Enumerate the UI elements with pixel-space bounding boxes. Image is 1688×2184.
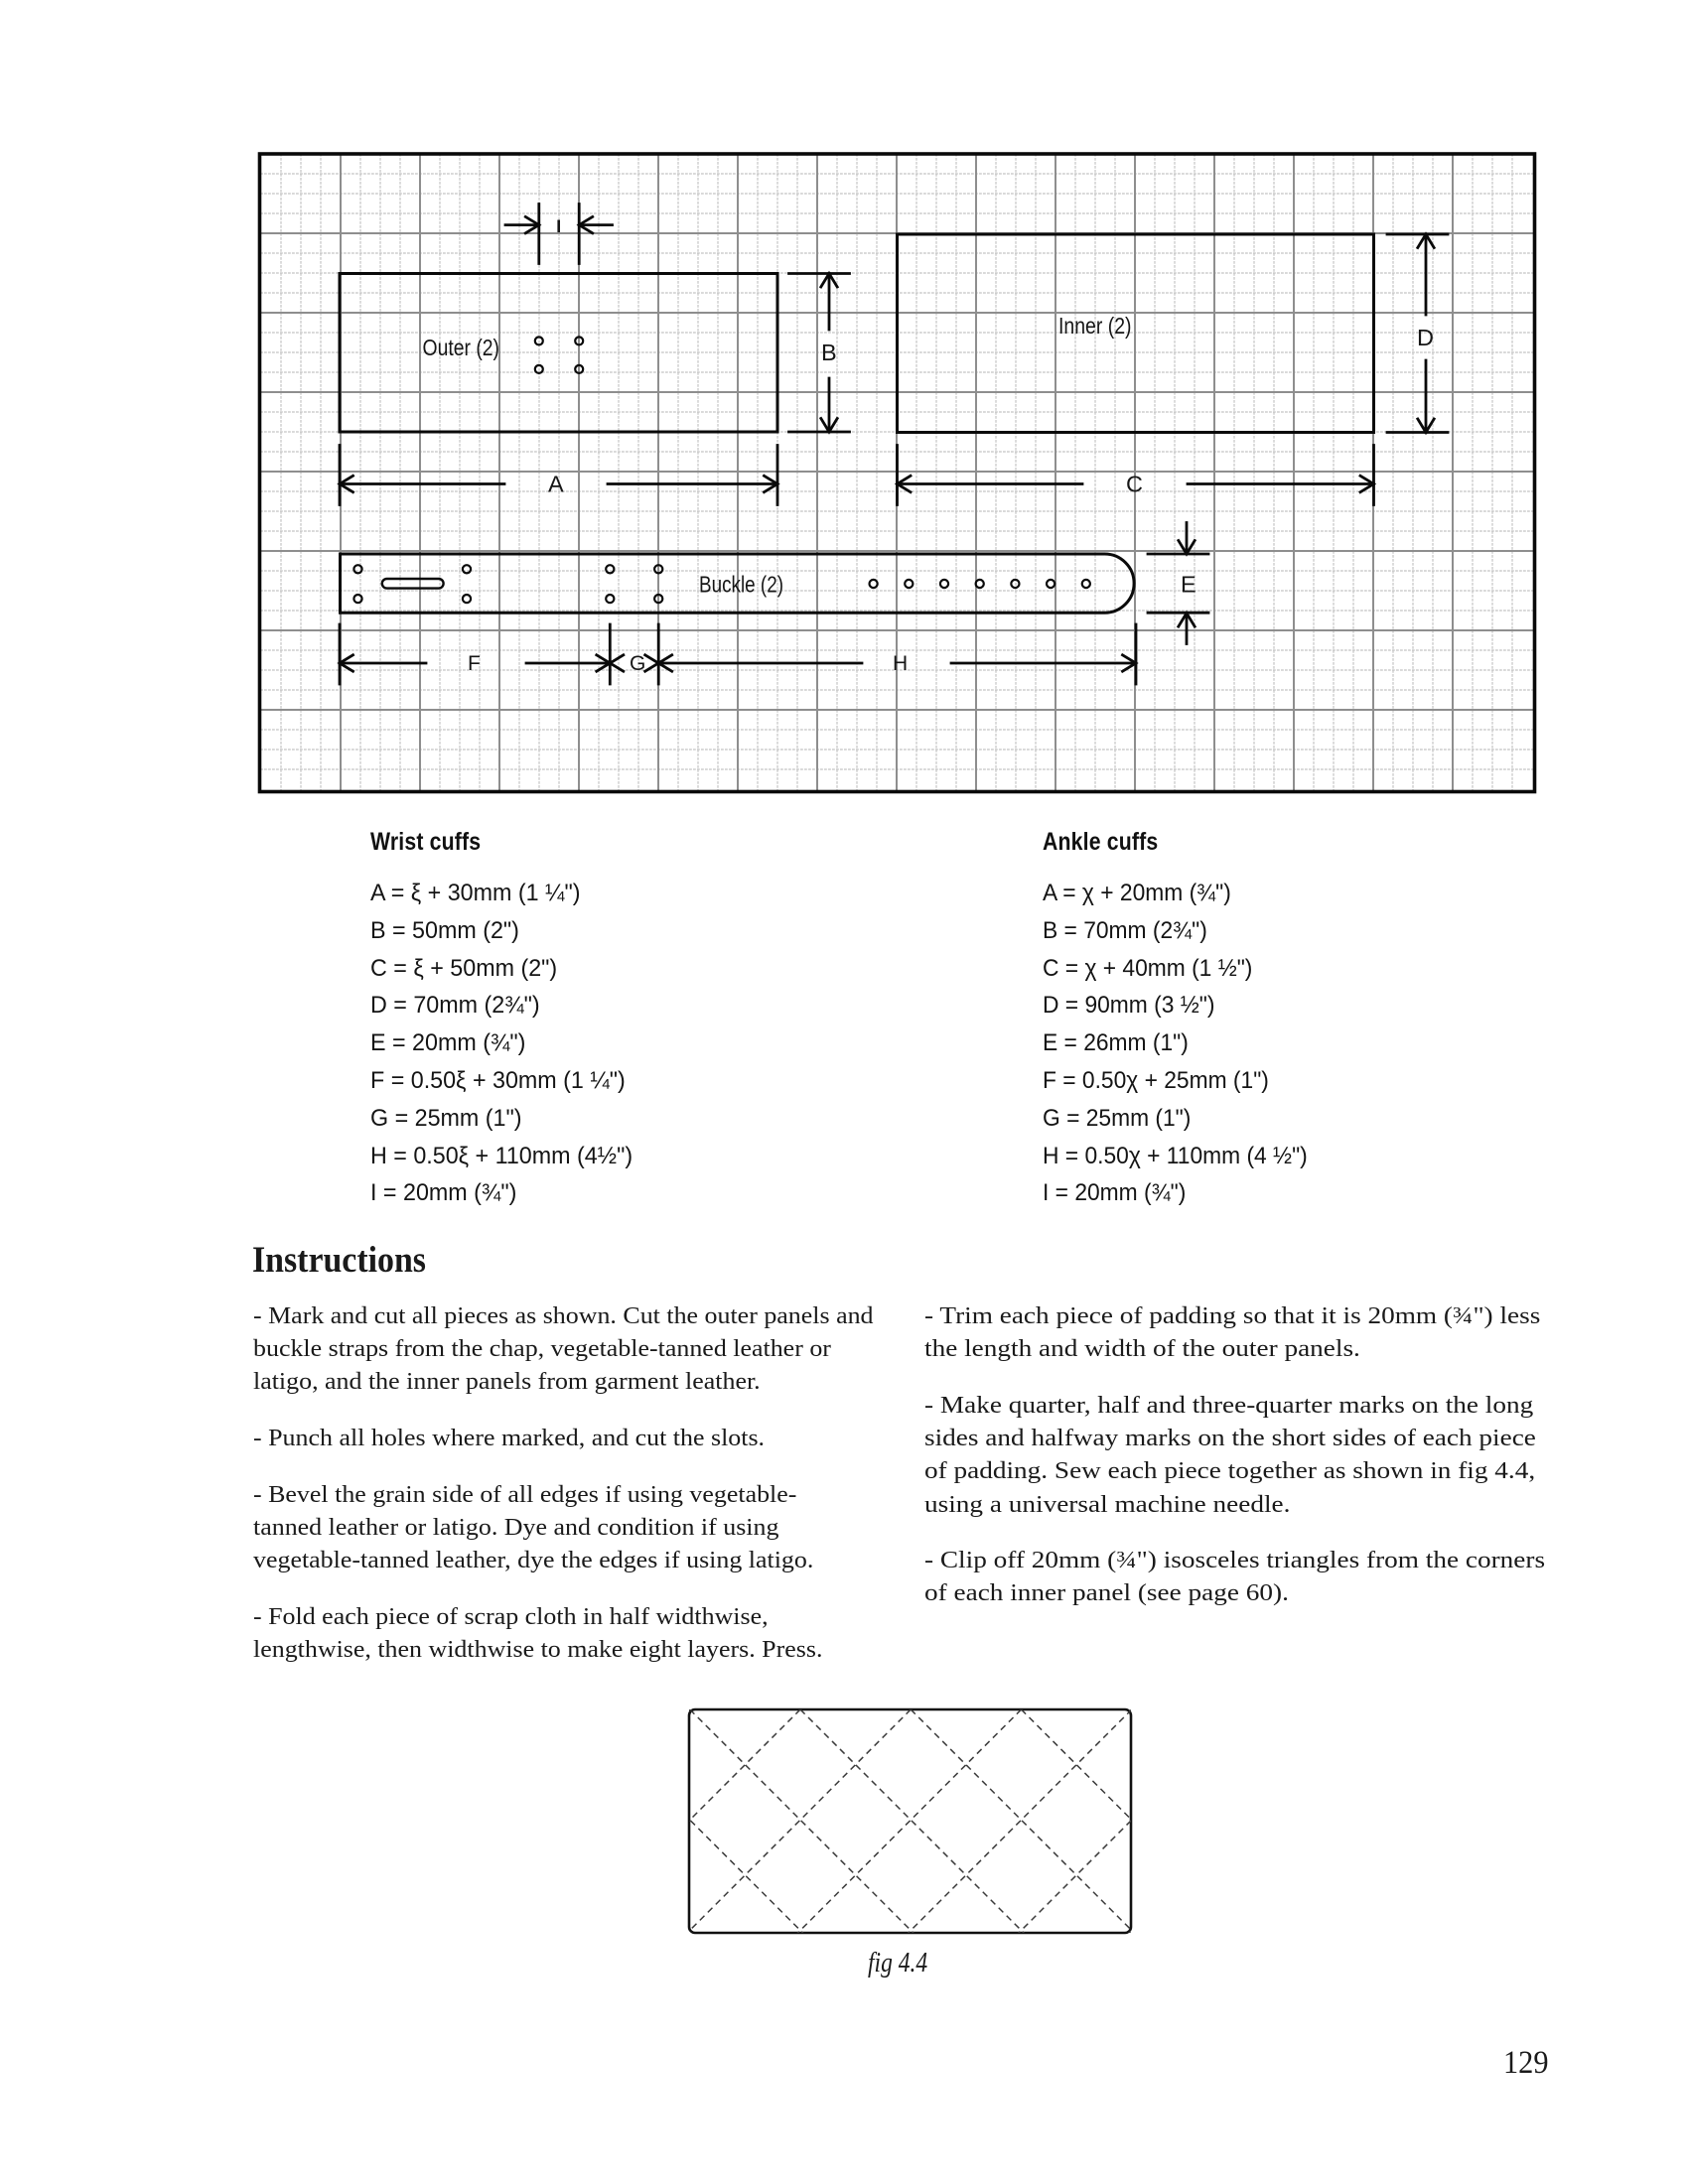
svg-text:A: A	[548, 472, 564, 497]
svg-text:F: F	[468, 652, 481, 675]
svg-text:H: H	[893, 652, 908, 675]
svg-text:B: B	[821, 340, 837, 365]
svg-text:E: E	[1181, 572, 1196, 598]
svg-text:Outer (2): Outer (2)	[423, 335, 500, 360]
svg-text:Buckle (2): Buckle (2)	[699, 572, 783, 598]
svg-text:G: G	[630, 652, 645, 675]
svg-text:Inner (2): Inner (2)	[1058, 313, 1132, 339]
svg-text:D: D	[1417, 325, 1434, 350]
svg-text:C: C	[1126, 472, 1143, 497]
